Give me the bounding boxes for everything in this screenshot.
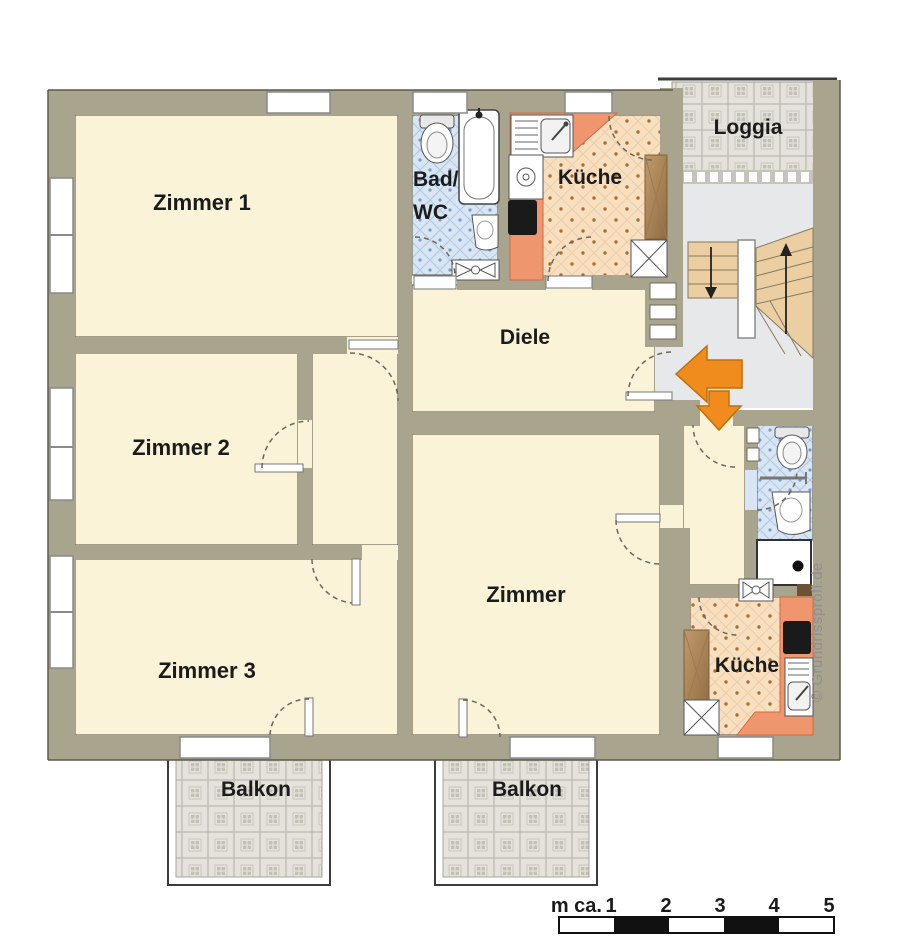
vestibule-floor <box>683 425 745 585</box>
balcony-left <box>168 752 330 885</box>
scale-mark-2: 2 <box>660 895 671 917</box>
floor-plan-page: Zimmer 1 Zimmer 2 Zimmer 3 Zimmer Diele … <box>0 0 900 952</box>
corridor-floor <box>312 353 398 545</box>
tall-cabinet-icon <box>645 155 667 239</box>
stove-right-icon <box>783 621 811 654</box>
shaft-icon <box>631 240 667 277</box>
label-kueche-top: Küche <box>558 166 622 189</box>
floorplan: Zimmer 1 Zimmer 2 Zimmer 3 Zimmer Diele … <box>0 0 900 952</box>
scale-mark-4: 4 <box>768 895 780 917</box>
toilet-right-icon <box>775 427 809 469</box>
kitchen-sink-icon <box>511 115 573 157</box>
bathtub-icon <box>459 108 499 204</box>
label-bad-line1: Bad/ <box>413 168 459 191</box>
washing-machine-icon <box>509 155 543 199</box>
label-zimmer1: Zimmer 1 <box>153 190 251 215</box>
shaft-right-icon <box>684 700 719 735</box>
label-kueche-right: Küche <box>715 654 779 677</box>
scale-bar: m ca. 1 2 3 4 5 <box>551 895 835 933</box>
shower-icon <box>757 540 811 585</box>
stair-railing <box>738 240 755 338</box>
label-zimmer-center: Zimmer <box>486 582 566 607</box>
scale-mark-1: 1 <box>605 895 616 917</box>
sink-right-icon <box>772 492 810 535</box>
stairs-down-flight <box>688 242 738 299</box>
scale-mark-3: 3 <box>714 895 725 917</box>
label-bad-line2: WC <box>413 201 448 224</box>
scale-prefix: m ca. <box>551 895 602 917</box>
toilet-icon <box>420 115 454 163</box>
scale-mark-5: 5 <box>823 895 834 917</box>
radiator-icon <box>452 260 499 280</box>
label-balkon-left: Balkon <box>221 778 291 801</box>
label-diele: Diele <box>500 326 550 349</box>
stove-icon <box>508 200 537 235</box>
label-loggia: Loggia <box>714 116 783 139</box>
label-balkon-right: Balkon <box>492 778 562 801</box>
bathroom-sink-icon <box>472 215 498 250</box>
label-zimmer2: Zimmer 2 <box>132 435 230 460</box>
balcony-right <box>435 752 597 885</box>
label-zimmer3: Zimmer 3 <box>158 658 256 683</box>
watermark-text: © Grundrissprofi.de <box>809 562 826 702</box>
vent-bowtie-icon <box>739 579 773 601</box>
room-zimmer3-floor <box>75 559 398 735</box>
room-zimmer1-floor <box>75 115 398 337</box>
